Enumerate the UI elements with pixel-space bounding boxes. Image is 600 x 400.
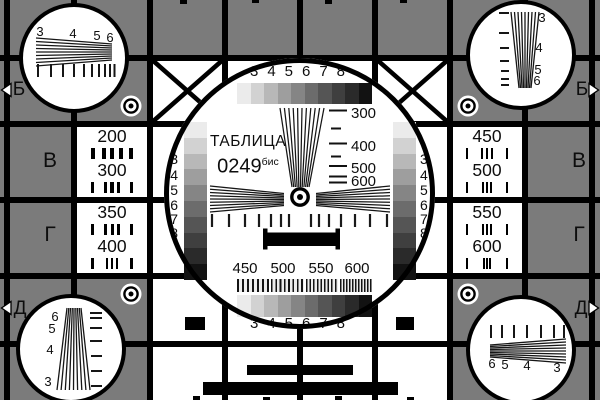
tick-row: [466, 224, 508, 235]
edge-digit-fragment: [325, 0, 332, 4]
tick-row: [91, 258, 133, 269]
resolution-cell-right-bottom: 550 600: [452, 203, 522, 269]
row-letter-g-right: Г: [564, 222, 594, 248]
row-letter-v-left: В: [35, 148, 65, 174]
tick-row: [91, 182, 133, 193]
edge-digit-fragment: [180, 0, 187, 4]
row-letter-g-left: Г: [35, 222, 65, 248]
black-square-left: [185, 317, 205, 330]
central-circle-ring: [164, 58, 435, 329]
tick-row: [91, 224, 133, 235]
resolution-value: 350: [97, 203, 126, 221]
resolution-value: 450: [472, 127, 501, 145]
edge-digit-fragment: [252, 0, 259, 3]
resolution-value: 500: [472, 161, 501, 179]
resolution-cell-left-bottom: 350 400: [77, 203, 147, 269]
resolution-cell-left-top: 200 300: [77, 127, 147, 193]
edge-marker-d-right: Д: [572, 299, 590, 319]
edge-marker-b-left: Б: [10, 80, 28, 100]
black-square-right: [396, 317, 414, 330]
edge-digit-fragment: [400, 0, 407, 3]
resolution-cell-right-top: 450 500: [452, 127, 522, 193]
tick-row: [466, 148, 508, 159]
resolution-value: 300: [97, 161, 126, 179]
tv-test-card: 3 4 5 6 3 4 5 6 6 5 4 3 6 5 4 3: [0, 0, 600, 400]
resolution-value: 600: [472, 237, 501, 255]
edge-digit-fragment: [193, 396, 200, 400]
edge-digit-fragment: [335, 396, 342, 400]
resolution-value: 550: [472, 203, 501, 221]
tick-row: [466, 258, 508, 269]
edge-marker-b-right: Б: [574, 80, 590, 100]
edge-marker-d-left: Д: [10, 299, 30, 319]
resolution-value: 200: [97, 127, 126, 145]
tick-row: [91, 148, 133, 159]
tick-row: [466, 182, 508, 193]
row-letter-v-right: В: [564, 148, 594, 174]
bottom-long-bar: [203, 382, 398, 395]
resolution-value: 400: [97, 237, 126, 255]
bottom-short-bar: [247, 365, 353, 375]
